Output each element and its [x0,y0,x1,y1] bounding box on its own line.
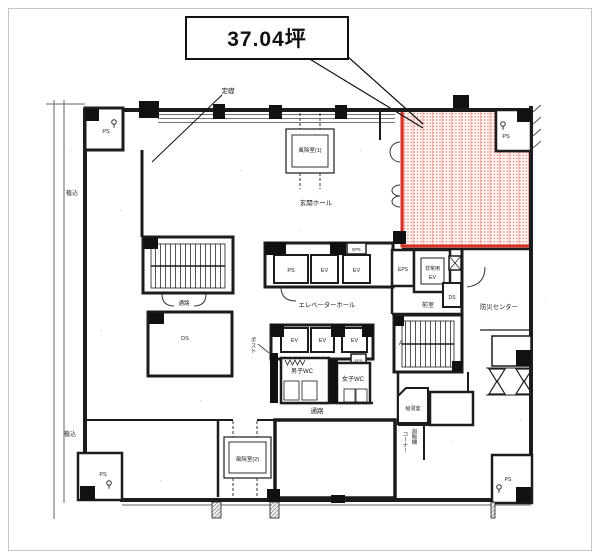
disaster-center-label: 防災センター [480,302,518,311]
vending-label-right: 自販機 [410,428,416,445]
passage-label-bottom: 通路 [311,406,325,415]
kitchenette-label: 給湯室 [405,405,420,412]
anteroom-label: 前室 [422,301,434,309]
womens-wc-label: 女子WC [342,375,365,383]
callout-leader-lines [308,56,423,128]
planting-label-lower: 植込 [64,430,76,438]
ev-label-3: EV [291,338,299,344]
ev-label-2: EV [353,268,361,274]
floor-plan-drawing: 定礎 風除室(1) 玄関ホール PS PS EPS PS EV EV エレベータ… [0,0,600,559]
mail-chute-label: ポスト [249,337,255,354]
emergency-ev-label-2: EV [429,275,437,281]
planting-label-upper: 植込 [66,189,78,197]
ps-label-bottomright: PS [505,477,512,483]
cornerstone-label: 定礎 [222,86,236,95]
area-value: 37.04坪 [227,23,307,53]
ev-label-1: EV [321,268,329,274]
eps-label-center: EPS [352,247,361,252]
ps-label-topleft: PS [102,129,110,135]
stair-a-label: A [399,340,404,347]
eps-label-bottom: EPS [354,358,362,363]
passage-label-mid: 通路 [178,299,190,307]
vending-label-left: コーナー [401,431,407,453]
area-callout-box: 37.04坪 [185,16,349,60]
windbreak2-label: 風除室(2) [236,455,259,463]
ev-label-4: EV [319,338,327,344]
eps-label-right: EPS [398,267,409,273]
floor-plan-page: 37.04坪 ポスト 自販機 コーナー [0,0,600,559]
entrance-hall-label: 玄関ホール [300,198,333,207]
ds-label-left: DS [181,336,189,342]
hourglass-symbols [489,369,532,394]
elevator-hall-label: エレベーターホール [299,300,356,309]
ps-label-center: PS [287,268,295,274]
ds-label-right: DS [449,295,457,301]
mens-wc-label: 男子WC [291,368,314,375]
ps-label-notch: PS [502,134,510,140]
ps-label-bottomleft: PS [99,472,107,478]
emergency-ev-label-1: 非常用 [425,265,440,272]
windbreak1-label: 風除室(1) [298,146,321,154]
ev-label-5: EV [351,338,359,344]
